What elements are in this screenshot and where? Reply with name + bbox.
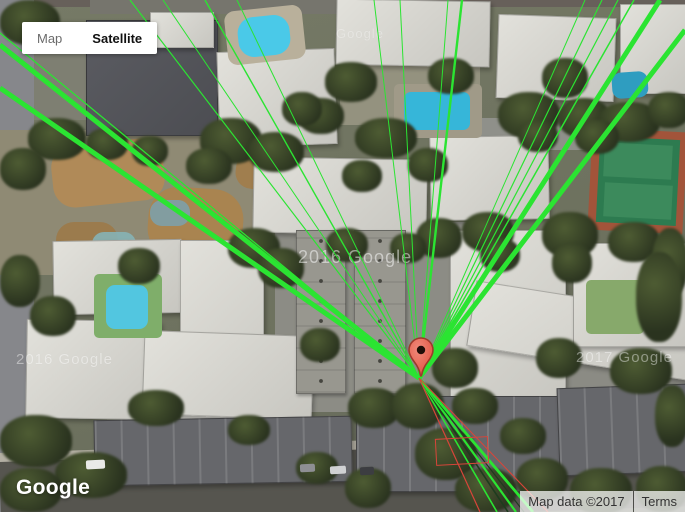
map-feature: [132, 136, 168, 166]
map-feature: [248, 132, 304, 172]
map-feature: [575, 120, 619, 154]
map-feature: [236, 13, 292, 58]
map-feature: [300, 328, 340, 362]
map-feature: [648, 92, 685, 128]
map-canvas[interactable]: Google2016 Google2016 Google2017 Google …: [0, 0, 685, 512]
map-button[interactable]: Map: [22, 22, 77, 54]
map-feature: [325, 62, 377, 102]
map-feature: [452, 388, 498, 424]
map-feature: [603, 182, 673, 220]
terms-link[interactable]: Terms: [634, 491, 685, 512]
map-feature: [86, 128, 128, 160]
map-feature: [611, 71, 649, 99]
map-feature: [342, 160, 382, 192]
marker-pin-body: [409, 338, 433, 376]
map-feature: [636, 252, 682, 342]
map-feature: [428, 58, 474, 94]
map-feature: [355, 118, 417, 158]
map-marker[interactable]: [408, 337, 434, 377]
map-watermark: 2017 Google: [576, 349, 673, 366]
map-feature: [90, 0, 345, 14]
map-feature: [150, 200, 190, 226]
map-feature: [392, 383, 444, 429]
map-feature: [408, 148, 448, 182]
map-feature: [0, 255, 40, 307]
map-feature: [228, 415, 270, 445]
map-feature: [0, 148, 46, 190]
map-feature: [128, 390, 184, 426]
map-feature: [480, 238, 520, 272]
map-feature: [655, 385, 685, 447]
map-feature: [542, 58, 588, 98]
map-feature: [552, 243, 592, 283]
map-feature: [455, 468, 517, 512]
map-feature: [360, 467, 374, 476]
map-feature: [30, 296, 76, 336]
map-feature: [186, 148, 232, 184]
marker-pin-hole: [417, 346, 425, 354]
map-feature: [118, 248, 160, 284]
map-feature: [300, 464, 315, 473]
map-feature: [432, 348, 478, 388]
map-feature: [86, 460, 105, 470]
map-watermark: 2016 Google: [298, 247, 412, 268]
map-type-control: Map Satellite: [22, 22, 157, 54]
satellite-button[interactable]: Satellite: [77, 22, 157, 54]
map-feature: [330, 466, 346, 475]
map-feature: [518, 120, 558, 152]
map-feature: [404, 92, 470, 130]
google-logo[interactable]: Google: [16, 476, 90, 500]
map-feature: [106, 285, 148, 329]
map-feature: [282, 92, 322, 126]
attribution-bar: Map data ©2017 Terms: [520, 491, 685, 512]
map-watermark: 2016 Google: [16, 351, 113, 368]
map-data-text: Map data ©2017: [520, 491, 632, 512]
map-feature: [150, 12, 214, 48]
map-feature: [500, 418, 546, 454]
map-watermark: Google: [336, 26, 384, 41]
